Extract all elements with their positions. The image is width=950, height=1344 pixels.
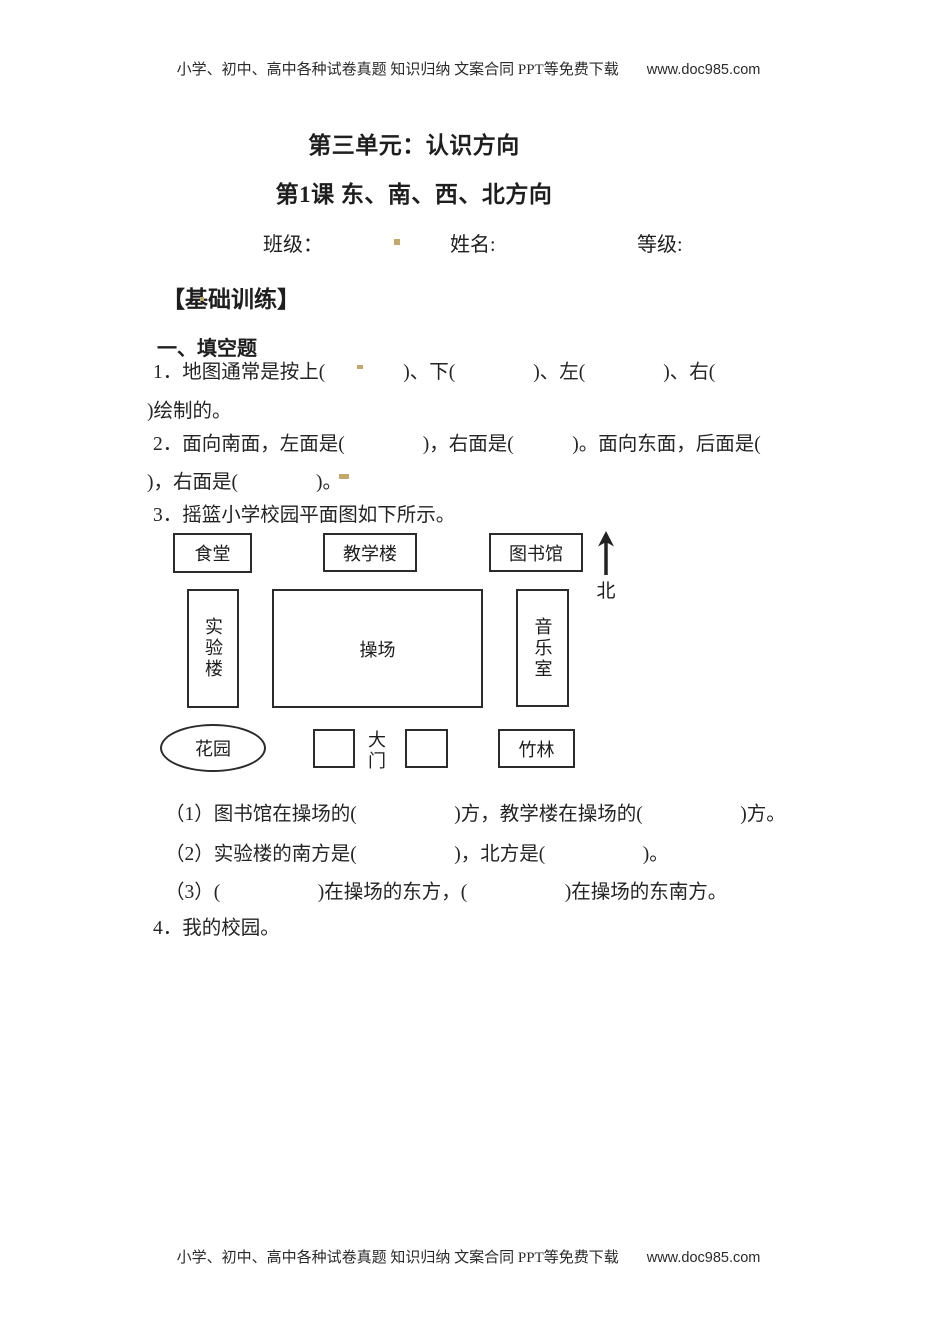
map-box-canteen: 食堂 <box>173 533 252 573</box>
map-box-library: 图书馆 <box>489 533 583 572</box>
map-box-gate-right <box>405 729 448 768</box>
playground-label: 操场 <box>360 636 396 662</box>
question-1-line-1: 1．地图通常是按上( )、下( )、左( )、右( <box>153 355 715 384</box>
footer-site-url: www.doc985.com <box>647 1250 761 1266</box>
gate-label: 大门 <box>363 727 389 775</box>
canteen-label: 食堂 <box>195 540 231 566</box>
map-box-playground: 操场 <box>272 589 483 708</box>
student-info-line: 班级： 姓名: 等级: <box>0 228 950 254</box>
question-1-line-2: )绘制的。 <box>147 394 232 423</box>
stray-highlight-mark <box>394 239 400 245</box>
question-4: 4．我的校园。 <box>153 911 280 940</box>
lesson-title: 第1课 东、南、西、北方向 <box>0 175 828 209</box>
grade-label: 等级: <box>637 228 683 257</box>
map-box-teaching-building: 教学楼 <box>323 533 417 572</box>
music-room-label: 音乐室 <box>530 617 556 680</box>
north-label: 北 <box>593 576 619 603</box>
question-3-sub-3: （3）( )在操场的东方，( )在操场的东南方。 <box>165 875 727 904</box>
map-ellipse-garden: 花园 <box>160 724 266 772</box>
name-label: 姓名: <box>450 228 496 257</box>
map-box-bamboo-grove: 竹林 <box>498 729 575 768</box>
stray-highlight-mark <box>339 474 349 479</box>
stray-highlight-mark <box>357 365 363 369</box>
library-label: 图书馆 <box>509 540 563 566</box>
page-footer: 小学、初中、高中各种试卷真题 知识归纳 文案合同 PPT等免费下载www.doc… <box>0 1229 922 1284</box>
question-3-intro: 3．摇篮小学校园平面图如下所示。 <box>153 498 455 527</box>
map-box-lab-building: 实验楼 <box>187 589 239 708</box>
gate-label-text: 大门 <box>363 730 389 772</box>
question-3-sub-1: （1）图书馆在操场的( )方，教学楼在操场的( )方。 <box>165 797 786 826</box>
bamboo-grove-label: 竹林 <box>519 736 555 762</box>
worksheet-page: 小学、初中、高中各种试卷真题 知识归纳 文案合同 PPT等免费下载www.doc… <box>0 0 950 1344</box>
map-box-gate-left <box>313 729 355 768</box>
teaching-building-label: 教学楼 <box>343 540 397 566</box>
header-site-url: www.doc985.com <box>647 62 761 78</box>
question-2-line-1: 2．面向南面，左面是( )，右面是( )。面向东面，后面是( <box>153 427 761 456</box>
page-header: 小学、初中、高中各种试卷真题 知识归纳 文案合同 PPT等免费下载www.doc… <box>0 41 922 96</box>
question-3-sub-2: （2）实验楼的南方是( )，北方是( )。 <box>165 837 669 866</box>
class-label: 班级： <box>263 228 323 257</box>
section-basic-training: 【基础训练】 <box>162 280 300 314</box>
footer-promo-text: 小学、初中、高中各种试卷真题 知识归纳 文案合同 PPT等免费下载 <box>177 1250 619 1266</box>
garden-label: 花园 <box>195 735 231 761</box>
unit-title: 第三单元：认识方向 <box>0 126 828 160</box>
lab-building-label: 实验楼 <box>200 617 226 680</box>
north-arrow-icon <box>593 530 619 576</box>
map-box-music-room: 音乐室 <box>516 589 569 707</box>
header-promo-text: 小学、初中、高中各种试卷真题 知识归纳 文案合同 PPT等免费下载 <box>177 62 619 78</box>
stray-highlight-mark <box>200 297 204 301</box>
question-2-line-2: )，右面是( )。 <box>147 465 342 494</box>
